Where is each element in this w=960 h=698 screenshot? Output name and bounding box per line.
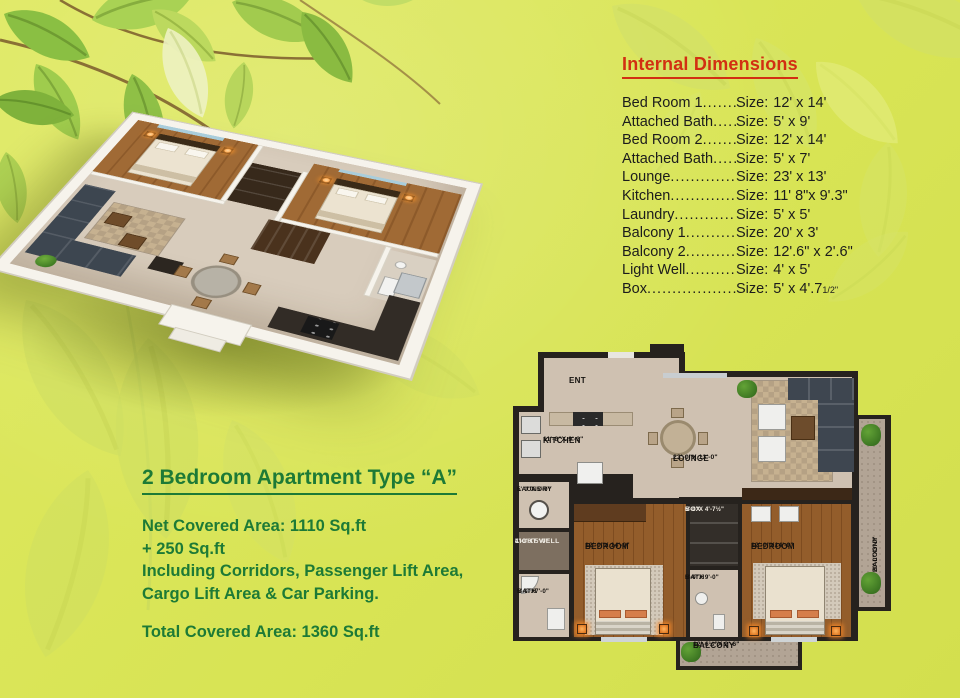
dresser (574, 504, 646, 522)
branch (60, 0, 340, 59)
nightstand (779, 506, 799, 522)
dim-label: Box (622, 281, 647, 297)
room-dim: 5'-0"X 5'-0" (517, 486, 551, 493)
dim-label: Balcony 1 (622, 225, 686, 241)
pillow (770, 610, 792, 618)
dim-value: 23' x 13' (773, 169, 826, 185)
dim-label: Bed Room 1 (622, 95, 703, 111)
dim-label: Lounge (622, 169, 670, 185)
dimension-row: Attached Bath...........................… (622, 151, 952, 170)
dimension-row: Light Well..............................… (622, 262, 952, 281)
room-dim: 4'-0"X 5'-0" (515, 538, 549, 545)
coffee-table (791, 416, 815, 440)
dim-size-prefix: Size: (736, 207, 768, 223)
pillow (599, 610, 621, 618)
dim-size-prefix: Size: (736, 262, 768, 278)
dim-label: Balcony 2 (622, 244, 686, 260)
dots-leader: ........................................… (713, 151, 736, 167)
room-dim: 20'-0"X3'-0" (872, 537, 879, 572)
room-dim: 12'-0"X14'-0" (751, 542, 794, 550)
leaf-icon (6, 461, 128, 666)
chair (191, 296, 213, 309)
dim-value: 5' x 7' (773, 151, 810, 167)
room-dim: 12'-6½"X 2'-6" (693, 641, 740, 649)
window (601, 637, 647, 642)
fridge (577, 462, 603, 484)
bed-blanket (766, 621, 824, 634)
leaf-icon (87, 0, 200, 40)
dots-leader: ........................................… (685, 262, 736, 278)
net-area-line: Net Covered Area: 1110 Sq.ft (142, 515, 463, 538)
dim-label: Attached Bath (622, 114, 713, 130)
dim-size-prefix: Size: (736, 95, 768, 111)
sink (695, 592, 708, 605)
lamp-icon (831, 626, 841, 636)
sink-cabinet (521, 416, 541, 434)
bed-blanket (596, 621, 650, 634)
dim-size-prefix: Size: (736, 132, 768, 148)
leaf-icon (288, 2, 365, 93)
dots-leader: ........................................… (686, 225, 736, 241)
apartment-title: 2 Bedroom Apartment Type “A” (142, 466, 457, 495)
lamp-icon (659, 624, 669, 634)
dimension-row: Bed Room 2..............................… (622, 132, 952, 151)
dim-value: 20' x 3' (773, 225, 818, 241)
nightstand (751, 506, 771, 522)
dots-leader: ........................................… (703, 132, 736, 148)
dots-leader: ........................................… (686, 244, 736, 260)
plus-area-line: + 250 Sq.ft (142, 538, 463, 561)
dim-value: 4' x 5' (773, 262, 810, 278)
dim-value: 5' x 4'.7 (773, 281, 822, 297)
chair (219, 253, 239, 265)
window (663, 373, 727, 378)
leaf-icon (0, 83, 77, 132)
plant-icon (861, 424, 881, 446)
dimension-row: Laundry.................................… (622, 207, 952, 226)
chair (698, 432, 708, 445)
armchair (758, 436, 786, 462)
stove (573, 412, 603, 426)
dimension-row: Box.....................................… (622, 281, 952, 300)
leaf-icon (220, 60, 259, 131)
plant-icon (861, 572, 881, 594)
dots-leader: ........................................… (713, 114, 736, 130)
dim-size-prefix: Size: (736, 114, 768, 130)
dim-size-prefix: Size: (736, 225, 768, 241)
apartment-area-details: Net Covered Area: 1110 Sq.ft + 250 Sq.ft… (142, 515, 463, 605)
dimension-row: Balcony 2...............................… (622, 244, 952, 263)
dim-label: Bed Room 2 (622, 132, 703, 148)
sink (547, 608, 565, 630)
leaf-icon (151, 21, 221, 125)
leaf-icon (21, 55, 93, 148)
dimension-row: Balcony 1...............................… (622, 225, 952, 244)
pillow (625, 610, 647, 618)
dim-label: Light Well (622, 262, 685, 278)
sink-cabinet (521, 440, 541, 458)
leaf-icon (225, 0, 329, 55)
leaf-icon (142, 0, 226, 74)
chair (648, 432, 658, 445)
chair (671, 408, 684, 418)
dim-size-prefix: Size: (736, 281, 768, 297)
dim-size-prefix: Size: (736, 169, 768, 185)
room-dim: 5'-0"X 9'-0" (685, 574, 719, 581)
dim-value: 12'.6" x 2'.6" (773, 244, 853, 260)
dimension-row: Bed Room 1..............................… (622, 95, 952, 114)
chair (242, 282, 262, 296)
kitchen-counter (374, 295, 421, 341)
including-line-1: Including Corridors, Passenger Lift Area… (142, 560, 463, 583)
dots-leader: ........................................… (703, 95, 736, 111)
entry-door-opening (608, 352, 634, 358)
toilet (713, 614, 725, 630)
room-dim: 5'-0"X 4'-7½" (685, 506, 724, 513)
internal-dimensions-panel: Internal Dimensions Bed Room 1..........… (622, 54, 952, 300)
room-dim: 23'-0"X 13'-0" (673, 454, 718, 462)
total-area-line: Total Covered Area: 1360 Sq.ft (142, 623, 463, 642)
branch (300, 0, 440, 104)
room-dim: 5'-0"X7'-0" (517, 588, 549, 595)
pillow (797, 610, 819, 618)
dimension-row: Lounge..................................… (622, 169, 952, 188)
brochure-page: Internal Dimensions Bed Room 1..........… (0, 0, 960, 698)
dining-table (660, 420, 696, 456)
dots-leader: ........................................… (670, 169, 736, 185)
dim-label: Kitchen (622, 188, 670, 204)
dim-size-prefix: Size: (736, 244, 768, 260)
dim-label: Attached Bath (622, 151, 713, 167)
dim-size-prefix: Size: (736, 188, 768, 204)
dim-value: 12' x 14' (773, 95, 826, 111)
dim-size-prefix: Size: (736, 151, 768, 167)
washing-machine (529, 500, 549, 520)
leaf-icon (0, 0, 98, 75)
dim-value: 11' 8"x 9'.3" (773, 188, 847, 204)
dots-leader: ........................................… (647, 281, 736, 297)
armchair (758, 404, 786, 430)
leaf-icon (0, 150, 31, 225)
room-name: ENT (569, 376, 586, 385)
floorplan-2d: ENT KITCHEN11'-8"X 9'-3" LAUNDRY5'-0"X 5… (513, 344, 893, 674)
dim-value: 12' x 14' (773, 132, 826, 148)
internal-dimensions-list: Bed Room 1..............................… (622, 95, 952, 300)
dimension-row: Kitchen.................................… (622, 188, 952, 207)
plant-icon (737, 380, 757, 398)
including-line-2: Cargo Lift Area & Car Parking. (142, 583, 463, 606)
room-dim: 11'-8"X 9'-3" (543, 436, 583, 444)
lamp-icon (749, 626, 759, 636)
media-console (742, 488, 852, 500)
room-dim: 12'-0"X 14'-0" (585, 542, 630, 550)
internal-dimensions-title: Internal Dimensions (622, 54, 798, 79)
dimension-row: Attached Bath...........................… (622, 114, 952, 133)
dim-value-fraction: 1/2" (822, 285, 838, 295)
apartment-info: 2 Bedroom Apartment Type “A” Net Covered… (142, 466, 463, 642)
dim-label: Laundry (622, 207, 674, 223)
dim-value: 5' x 9' (773, 114, 810, 130)
window (771, 637, 817, 642)
dots-leader: ........................................… (670, 188, 736, 204)
leaf-icon (354, 0, 434, 11)
dots-leader: ........................................… (674, 207, 736, 223)
lamp-icon (577, 624, 587, 634)
sofa (788, 378, 854, 400)
dim-value: 5' x 5' (773, 207, 810, 223)
